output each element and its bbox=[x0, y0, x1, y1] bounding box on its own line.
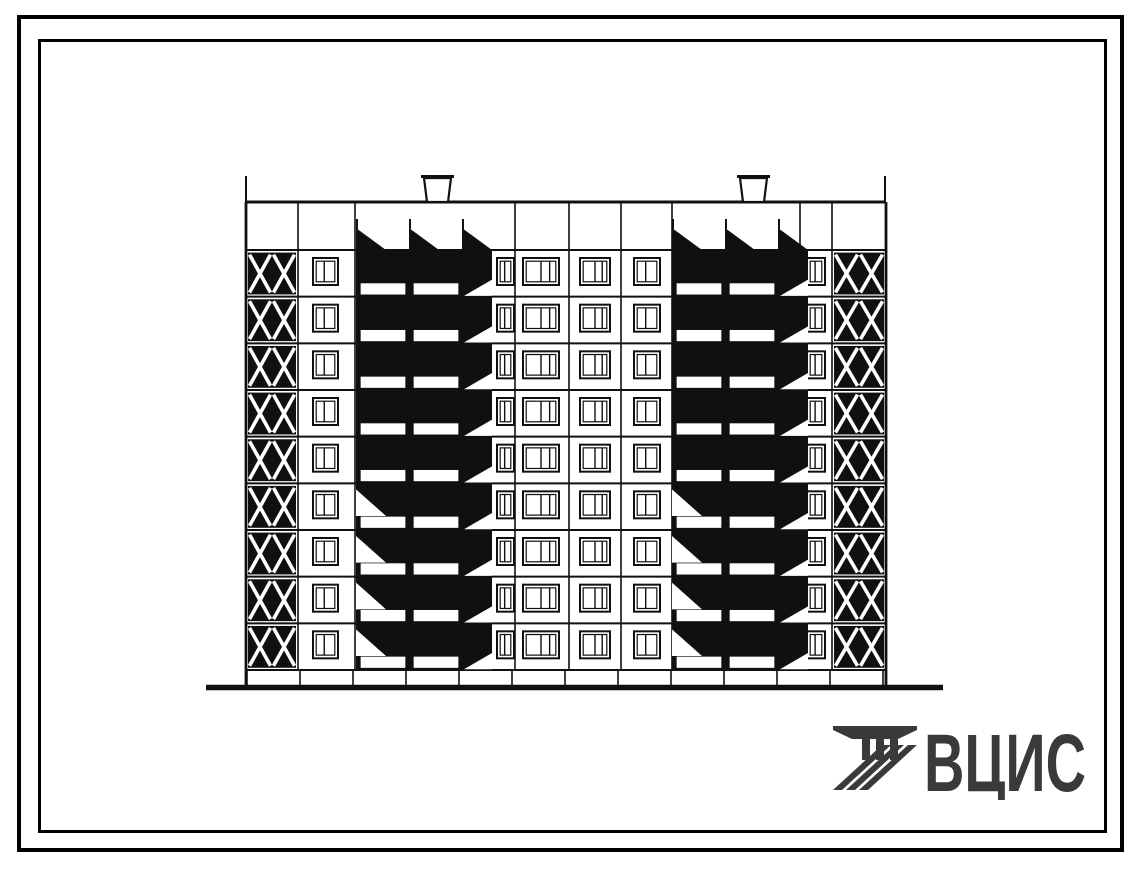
window bbox=[497, 398, 514, 425]
balcony-railing bbox=[413, 376, 459, 389]
balcony-railing bbox=[676, 516, 722, 529]
balcony-railing bbox=[729, 283, 775, 296]
sheet: { "page": { "background": "#ffffff", "fr… bbox=[0, 0, 1139, 869]
x-brace-panel bbox=[834, 626, 884, 668]
x-brace-panel bbox=[834, 533, 884, 575]
balcony-railing bbox=[729, 656, 775, 669]
balcony-railing bbox=[676, 283, 722, 296]
balcony-railing bbox=[413, 563, 459, 576]
x-brace-panel bbox=[248, 486, 296, 528]
balcony-railing bbox=[360, 609, 406, 622]
balcony-railing bbox=[676, 656, 722, 669]
balcony-railing bbox=[729, 469, 775, 482]
balcony-railing bbox=[729, 423, 775, 436]
x-brace-panel bbox=[834, 439, 884, 481]
window bbox=[497, 305, 514, 332]
balcony-railing bbox=[360, 329, 406, 342]
balcony-railing bbox=[413, 469, 459, 482]
x-brace-panel bbox=[834, 486, 884, 528]
x-brace-panel bbox=[834, 393, 884, 435]
window bbox=[497, 491, 514, 518]
window bbox=[497, 351, 514, 378]
x-brace-panel bbox=[834, 346, 884, 388]
balcony-railing bbox=[729, 329, 775, 342]
window bbox=[497, 631, 514, 658]
x-brace-panel bbox=[248, 299, 296, 341]
roof-shaft bbox=[424, 178, 451, 202]
window bbox=[634, 398, 660, 425]
balcony-railing bbox=[360, 376, 406, 389]
balcony-railing bbox=[729, 563, 775, 576]
vcis-logo: ВЦИС bbox=[831, 722, 1090, 800]
window bbox=[634, 351, 660, 378]
vcis-logo-wordmark: ВЦИС bbox=[922, 722, 1090, 800]
x-brace-panel bbox=[834, 299, 884, 341]
balcony-railing bbox=[360, 563, 406, 576]
x-brace-panel bbox=[248, 533, 296, 575]
balcony-railing bbox=[413, 423, 459, 436]
balcony-railing bbox=[413, 656, 459, 669]
window bbox=[497, 258, 514, 285]
window bbox=[634, 538, 660, 565]
vcis-logo-text: ВЦИС bbox=[924, 722, 1086, 800]
balcony-railing bbox=[360, 516, 406, 529]
x-brace-panel bbox=[834, 579, 884, 621]
balcony-railing bbox=[729, 609, 775, 622]
balcony-railing bbox=[676, 329, 722, 342]
window bbox=[634, 585, 660, 612]
balcony-railing bbox=[360, 283, 406, 296]
vcis-column-icon bbox=[831, 722, 919, 794]
balcony-railing bbox=[413, 516, 459, 529]
window bbox=[497, 445, 514, 472]
balcony-railing bbox=[413, 283, 459, 296]
window bbox=[634, 631, 660, 658]
roof-shafts bbox=[421, 175, 770, 202]
balcony-railing bbox=[676, 609, 722, 622]
balcony-railing bbox=[413, 329, 459, 342]
window bbox=[497, 585, 514, 612]
x-brace-panel bbox=[248, 253, 296, 295]
window bbox=[634, 445, 660, 472]
window bbox=[634, 258, 660, 285]
balcony-railing bbox=[676, 469, 722, 482]
x-brace-panel bbox=[248, 626, 296, 668]
balcony-railing bbox=[729, 516, 775, 529]
x-brace-panel bbox=[248, 393, 296, 435]
roof-shaft bbox=[740, 178, 767, 202]
balcony-railing bbox=[360, 469, 406, 482]
balcony-railing bbox=[729, 376, 775, 389]
window bbox=[634, 305, 660, 332]
x-brace-panel bbox=[248, 439, 296, 481]
x-brace-panel bbox=[834, 253, 884, 295]
balcony-railing bbox=[360, 423, 406, 436]
ground-line bbox=[206, 685, 943, 691]
balcony-railing bbox=[676, 423, 722, 436]
balcony-railing bbox=[676, 563, 722, 576]
vcis-column-icon-shapes bbox=[833, 726, 917, 790]
x-brace-panel bbox=[248, 346, 296, 388]
balcony-railing bbox=[676, 376, 722, 389]
window bbox=[497, 538, 514, 565]
x-brace-panel bbox=[248, 579, 296, 621]
balcony-railing bbox=[360, 656, 406, 669]
balcony-railing bbox=[413, 609, 459, 622]
window bbox=[634, 491, 660, 518]
